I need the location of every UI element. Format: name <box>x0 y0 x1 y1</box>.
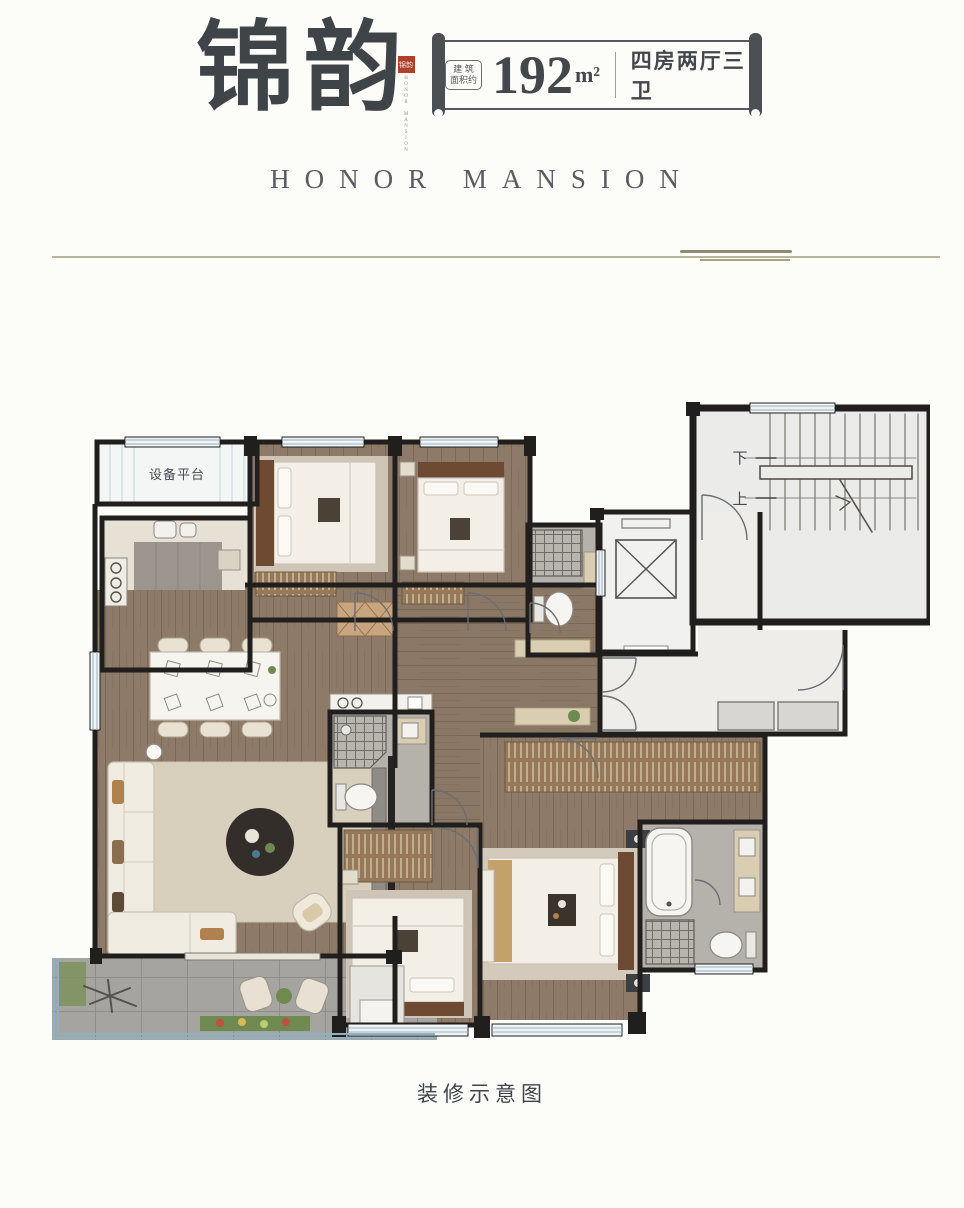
master-wardrobe <box>505 742 760 792</box>
bedroom-b-nightstand <box>400 462 415 476</box>
plant-icon <box>568 710 580 722</box>
scroll-roll-left-icon <box>432 33 445 117</box>
area-value: 192 <box>492 48 573 102</box>
red-seal-stamp-icon: 锦韵 <box>398 56 415 73</box>
bedroom-b-bed <box>418 462 504 572</box>
area-prefix-line2: 面积约 <box>450 75 477 86</box>
bedroom-b-nightstand-2 <box>400 556 415 570</box>
divider-ornament <box>680 250 792 253</box>
balcony-slider-door <box>185 953 320 960</box>
stairs-down-label: 下 <box>732 450 747 467</box>
area-banner: 建 筑 面积约 192 m² 四房两厅三卫 <box>432 33 762 117</box>
equipment-platform-label: 设备平台 <box>149 467 205 482</box>
master-bed <box>488 852 634 970</box>
area-unit: m² <box>575 62 600 88</box>
brand-seal-group: 锦韵 HONOR MANSION <box>397 56 415 154</box>
dining-table-icon <box>150 638 280 737</box>
bedroom-a-bed <box>256 460 376 566</box>
bedroom-c-nightstand <box>342 870 358 884</box>
kitchen-counter-item <box>218 550 240 570</box>
master-dresser <box>482 870 494 962</box>
header-divider <box>52 256 940 258</box>
area-prefix-box: 建 筑 面积约 <box>445 60 482 90</box>
side-table-icon <box>146 744 162 760</box>
area-banner-body: 建 筑 面积约 192 m² 四房两厅三卫 <box>445 40 749 110</box>
bathtub-icon <box>646 828 692 916</box>
elevator-floor <box>598 512 693 652</box>
scroll-roll-right-icon <box>749 33 762 117</box>
kitchen-sink-icon <box>154 521 196 538</box>
page-title: 锦韵 <box>196 16 412 124</box>
stove-icon <box>105 558 127 606</box>
banner-separator <box>615 52 616 98</box>
laundry-counter-icon <box>330 694 432 712</box>
divider-ornament-2 <box>700 259 790 261</box>
subtitle-honor-mansion: HONOR MANSION <box>0 164 964 195</box>
area-prefix-line1: 建 筑 <box>450 64 477 75</box>
coffee-table-icon <box>226 808 294 876</box>
lobby-niche <box>718 702 774 730</box>
stairs-up-label: 上 <box>732 491 747 508</box>
master-toilet-icon <box>710 932 756 958</box>
master-shower-icon <box>646 920 694 964</box>
plan-caption: 装修示意图 <box>0 1078 964 1108</box>
brand-vertical-text: HONOR MANSION <box>404 76 409 154</box>
master-vanity-icon <box>734 830 760 912</box>
floorplan-page: 锦韵 锦韵 HONOR MANSION 建 筑 面积约 192 m² 四房两厅三… <box>0 0 964 1208</box>
room-spec: 四房两厅三卫 <box>631 45 749 105</box>
lobby-niche-2 <box>778 702 838 730</box>
floorplan-drawing: 设备平台 下 上 <box>50 400 930 1060</box>
